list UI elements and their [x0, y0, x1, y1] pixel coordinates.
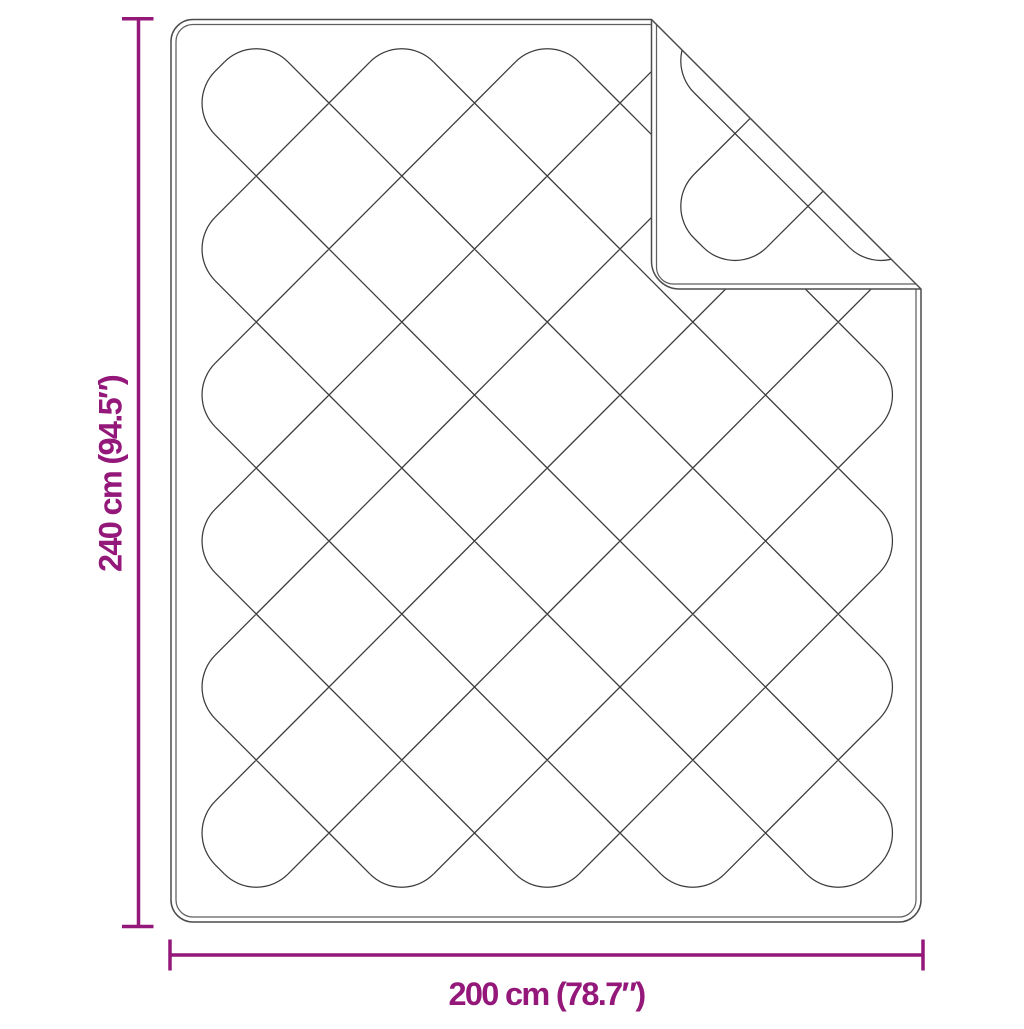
- svg-text:240 cm (94.5″): 240 cm (94.5″): [93, 375, 129, 572]
- svg-text:200 cm (78.7″): 200 cm (78.7″): [449, 976, 646, 1012]
